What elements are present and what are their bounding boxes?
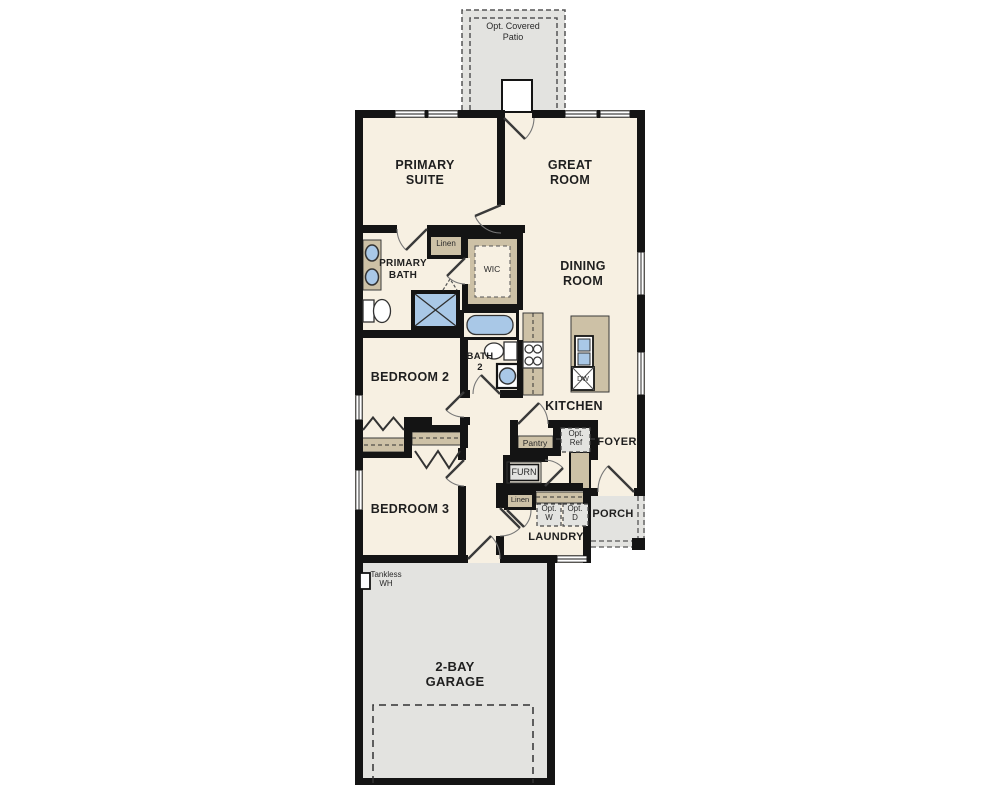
bedroom2-label: BEDROOM 2 — [360, 370, 460, 385]
wic-label: WIC — [472, 264, 512, 274]
toilet-icon — [504, 342, 517, 360]
foyer-label: FOYER — [587, 436, 647, 449]
toilet-icon — [374, 300, 391, 323]
dining-room-label: DINING ROOM — [548, 259, 618, 289]
floor-plan: Opt. Covered Patio PRIMARY SUITE GREAT R… — [0, 0, 1000, 800]
tankless-wh-label: Tankless WH — [366, 570, 406, 589]
sink-icon — [500, 368, 516, 384]
furnace-label: FURN — [504, 467, 544, 478]
bath2-label: BATH 2 — [465, 351, 495, 373]
toilet-icon — [363, 300, 374, 322]
patio-door-stoop — [502, 80, 532, 112]
pantry-label: Pantry — [515, 438, 555, 448]
dishwasher-label: DW — [573, 376, 593, 384]
opt-ref-label: Opt. Ref — [563, 429, 589, 448]
linen2-label: Linen — [500, 496, 540, 505]
porch-label: PORCH — [585, 508, 641, 521]
primary-suite-label: PRIMARY SUITE — [385, 158, 465, 188]
great-room-label: GREAT ROOM — [535, 158, 605, 188]
porch-column — [632, 538, 645, 550]
garage-label: 2-BAY GARAGE — [415, 659, 495, 690]
patio-label: Opt. Covered Patio — [481, 21, 545, 42]
opt-dryer-label: Opt. D — [565, 504, 585, 523]
primary-bath-label: PRIMARY BATH — [374, 258, 432, 282]
laundry-label: LAUNDRY — [506, 531, 606, 544]
opt-washer-label: Opt. W — [539, 504, 559, 523]
linen1-label: Linen — [426, 239, 466, 248]
floor-plan-canvas — [0, 0, 1000, 800]
kitchen-label: KITCHEN — [524, 399, 624, 414]
bedroom3-label: BEDROOM 3 — [360, 502, 460, 517]
